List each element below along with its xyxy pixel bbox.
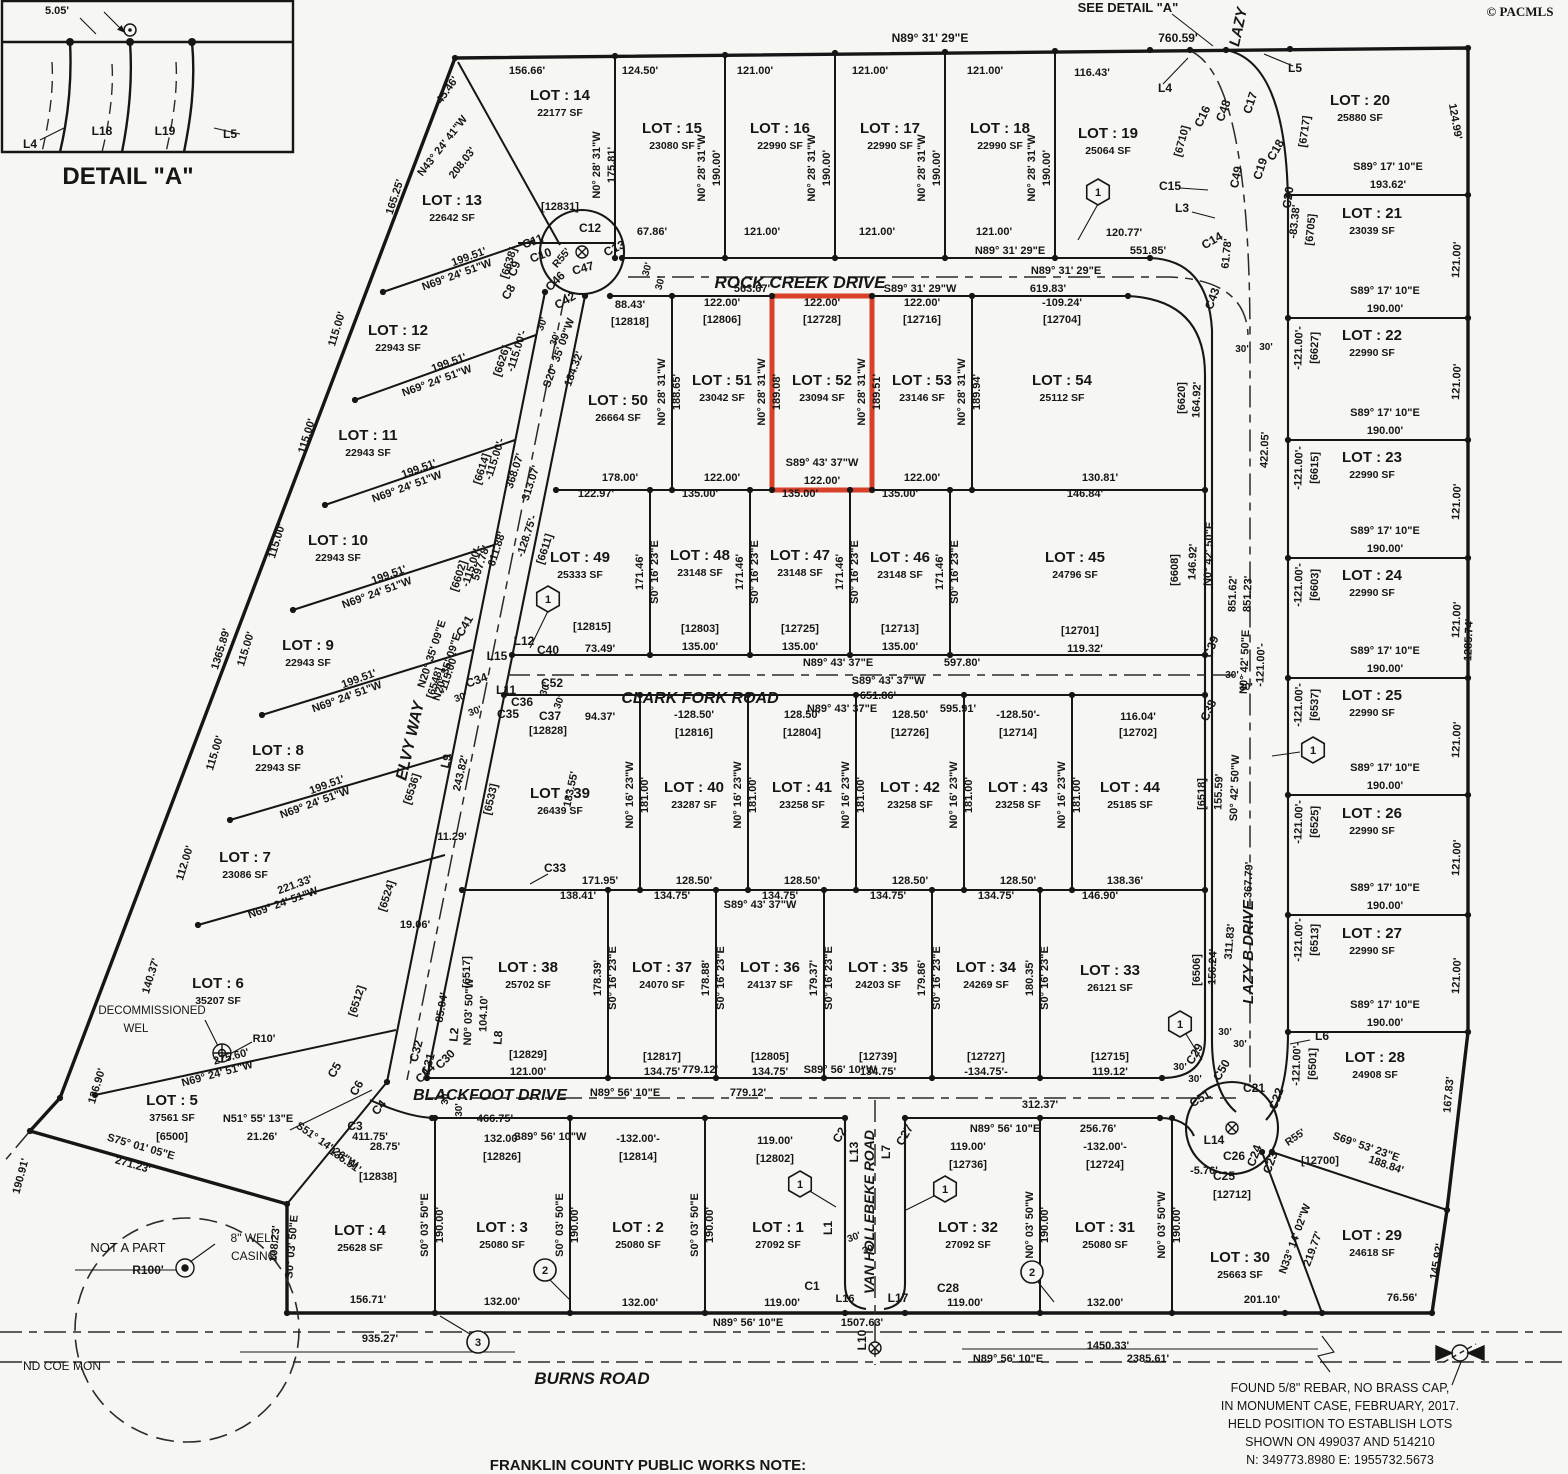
lot-label-41: LOT : 41 <box>772 779 832 796</box>
lot-label-29: LOT : 29 <box>1342 1227 1402 1244</box>
lot-area-15: 23080 SF <box>649 140 695 152</box>
survey-point-dot <box>619 255 625 261</box>
map-text-label: C35 <box>497 707 519 721</box>
survey-point-dot <box>1052 255 1058 261</box>
survey-point-dot <box>1465 315 1471 321</box>
map-text-label: [6537] <box>1308 688 1321 721</box>
monument-note-line: SHOWN ON 499037 AND 514210 <box>1245 1435 1435 1449</box>
survey-point-dot <box>853 887 859 893</box>
map-text-label: 119.32' <box>1067 643 1103 655</box>
lot-label-18: LOT : 18 <box>970 120 1030 137</box>
lot-label-20: LOT : 20 <box>1330 92 1390 109</box>
map-text-label: 190.00' <box>1367 900 1404 912</box>
lot-label-45: LOT : 45 <box>1045 549 1105 566</box>
survey-point-dot <box>1069 887 1075 893</box>
map-text-label: 130.81' <box>1082 472 1119 484</box>
map-text-label: 122.00' <box>804 297 841 309</box>
map-text-label: 122.00' <box>704 297 741 309</box>
map-text-label: 851.23' <box>1241 575 1254 612</box>
lot-label-24: LOT : 24 <box>1342 567 1403 584</box>
survey-point-dot <box>509 652 515 658</box>
lot-area-16: 22990 SF <box>757 140 803 152</box>
map-text-label: -132.00'- <box>1083 1141 1127 1153</box>
survey-point-dot <box>352 397 358 403</box>
map-text-label: S89° 43' 37"W <box>786 457 859 469</box>
map-text-label: 121.00' <box>510 1066 547 1078</box>
lot-label-13: LOT : 13 <box>422 192 482 209</box>
map-text-label: N89° 56' 10"E <box>973 1353 1043 1365</box>
lot-area-25: 22990 SF <box>1349 707 1395 719</box>
survey-point-dot <box>1125 293 1131 299</box>
map-text-label: 134.75' <box>654 890 691 902</box>
map-text-label: [12829] <box>509 1049 547 1061</box>
map-text-label: C12 <box>579 221 601 235</box>
map-text-label: 135.00' <box>782 641 819 653</box>
lot-label-26: LOT : 26 <box>1342 805 1402 822</box>
survey-point-dot <box>832 50 838 56</box>
map-text-label: L19 <box>155 124 176 138</box>
map-text-label: [12814] <box>619 1151 657 1163</box>
map-text-label: 180.35' <box>1024 959 1036 996</box>
lot-label-6: LOT : 6 <box>192 975 244 992</box>
map-text-label: CASING <box>231 1249 277 1263</box>
survey-point-dot <box>567 1310 573 1316</box>
lot-label-31: LOT : 31 <box>1075 1219 1135 1236</box>
circle-marker-number: 2 <box>1029 1267 1035 1279</box>
map-text-label: N0° 42' 50"E <box>1238 630 1252 695</box>
map-text-label: 5.05' <box>45 5 69 17</box>
lot-area-1: 27092 SF <box>755 1239 801 1251</box>
map-text-label: [12700] <box>1301 1155 1339 1167</box>
survey-point-dot <box>1147 47 1153 53</box>
map-text-label: 189.51' <box>871 373 883 410</box>
lot-label-16: LOT : 16 <box>750 120 810 137</box>
map-text-label: 121.00' <box>1450 957 1464 994</box>
map-text-label: 30' <box>1233 1039 1247 1050</box>
survey-point-dot <box>1285 792 1291 798</box>
lot-label-23: LOT : 23 <box>1342 449 1402 466</box>
map-text-label: N0° 28' 31"W <box>591 131 603 199</box>
map-text-label: S89° 43' 37"W <box>852 675 925 687</box>
map-text-label: 138.36' <box>1107 875 1144 887</box>
survey-point-dot <box>1069 692 1075 698</box>
map-text-label: [12816] <box>675 727 713 739</box>
survey-point-dot <box>1285 315 1291 321</box>
survey-point-dot <box>1202 887 1208 893</box>
lot-area-24: 22990 SF <box>1349 587 1395 599</box>
survey-point-dot <box>942 255 948 261</box>
map-text-label: 138.41' <box>560 890 597 902</box>
map-text-label: [12713] <box>881 623 919 635</box>
keynote-circle-2: 2 <box>1021 1261 1043 1283</box>
map-text-label: S0° 16' 23"E <box>749 540 761 604</box>
survey-point-dot <box>769 487 775 493</box>
map-text-label: R100' <box>132 1263 164 1277</box>
map-text-label: [12805] <box>751 1051 789 1063</box>
map-text-label: 122.97' <box>578 488 615 500</box>
map-text-label: 121.00' <box>1450 839 1464 876</box>
keynote-circle-2: 2 <box>534 1259 556 1281</box>
map-text-label: C1 <box>804 1279 820 1293</box>
map-text-label: N0° 03' 50"W <box>462 977 476 1045</box>
lot-label-36: LOT : 36 <box>740 959 800 976</box>
map-text-label: 122.00' <box>804 475 841 487</box>
map-text-label: 135.00' <box>682 641 719 653</box>
map-text-label: 189.94' <box>971 373 983 410</box>
survey-point-dot <box>1159 1075 1165 1081</box>
survey-point-dot <box>259 712 265 718</box>
map-text-label: 128.50' <box>892 709 929 721</box>
hexagon-marker-number: 1 <box>545 594 551 606</box>
map-text-label: 146.92' <box>1186 543 1199 580</box>
map-text-label: [12838] <box>359 1171 397 1183</box>
map-text-label: 128.50' <box>784 709 821 721</box>
lot-area-46: 23148 SF <box>877 569 923 581</box>
map-text-label: DECOMMISSIONED <box>98 1005 205 1017</box>
survey-point-dot <box>1465 192 1471 198</box>
map-text-label: 256.76' <box>1080 1123 1117 1135</box>
lot-label-21: LOT : 21 <box>1342 205 1402 222</box>
map-text-label: N89° 31' 29"E <box>1031 265 1101 277</box>
map-text-label: L3 <box>1175 201 1189 215</box>
map-text-label: 128.50' <box>676 875 713 887</box>
map-text-label: -121.00'- <box>1292 800 1306 844</box>
map-text-label: S0° 03' 50"E <box>554 1193 566 1257</box>
map-text-label: 201.10' <box>1244 1294 1281 1306</box>
lot-area-47: 23148 SF <box>777 567 823 579</box>
map-text-label: 181.00' <box>1071 776 1083 813</box>
survey-point-dot <box>1465 1029 1471 1035</box>
survey-point-dot <box>1285 1029 1291 1035</box>
survey-point-dot <box>713 887 719 893</box>
hexagon-marker-number: 1 <box>942 1184 948 1196</box>
lot-area-5: 37561 SF <box>149 1112 195 1124</box>
map-text-label: C21 <box>1243 1081 1265 1095</box>
map-text-label: 124.50' <box>622 65 659 77</box>
map-text-label: 181.00' <box>747 776 759 813</box>
map-text-label: 1285.74' <box>1462 618 1475 661</box>
lot-area-45: 24796 SF <box>1052 569 1098 581</box>
lot-label-2: LOT : 2 <box>612 1219 664 1236</box>
map-text-label: S89° 17' 10"E <box>1350 285 1420 297</box>
map-text-label: C33 <box>544 861 566 875</box>
map-text-label: N89° 56' 10"E <box>590 1087 660 1099</box>
lot-label-15: LOT : 15 <box>642 120 702 137</box>
lot-area-52: 23094 SF <box>799 392 845 404</box>
map-text-label: 466.75' <box>477 1113 514 1125</box>
map-text-label: N51° 55' 13"E <box>223 1113 293 1125</box>
survey-point-dot <box>1465 45 1471 51</box>
map-text-label: [12726] <box>891 727 929 739</box>
survey-point-dot <box>669 487 675 493</box>
map-text-label: L14 <box>1204 1133 1225 1147</box>
map-text-label: [12716] <box>903 314 941 326</box>
lot-area-4: 25628 SF <box>337 1242 383 1254</box>
map-text-label: 21.26' <box>247 1131 278 1143</box>
lot-area-42: 23258 SF <box>887 799 933 811</box>
detail-a-monument-dot <box>128 28 132 32</box>
survey-point-dot <box>1037 1075 1043 1081</box>
detail-a-point <box>188 38 196 46</box>
map-text-label: S89° 17' 10"E <box>1350 645 1420 657</box>
map-text-label: BLACKFOOT DRIVE <box>413 1087 568 1104</box>
lot-area-39: 26439 SF <box>537 805 583 817</box>
lot-area-35: 24203 SF <box>855 979 901 991</box>
survey-point-dot <box>747 487 753 493</box>
map-text-label: [12724] <box>1086 1159 1124 1171</box>
map-text-label: L1 <box>821 1221 835 1235</box>
map-text-label: 175.81' <box>606 146 618 183</box>
map-text-label: 312.37' <box>1022 1099 1059 1111</box>
map-text-label: 188.65' <box>671 373 683 410</box>
lot-label-51: LOT : 51 <box>692 372 752 389</box>
monument-note-line: HELD POSITION TO ESTABLISH LOTS <box>1228 1417 1452 1431</box>
map-text-label: 760.59' <box>1158 31 1198 45</box>
lot-area-43: 23258 SF <box>995 799 1041 811</box>
map-text-label: 190.00' <box>821 149 833 186</box>
lot-area-17: 22990 SF <box>867 140 913 152</box>
map-text-label: 178.88' <box>700 959 712 996</box>
map-text-label: N0° 28' 31"W <box>956 358 968 426</box>
survey-point-dot <box>1157 1115 1163 1121</box>
map-text-label: CLARK FORK ROAD <box>621 690 779 707</box>
survey-point-dot <box>1052 48 1058 54</box>
survey-point-dot <box>459 887 465 893</box>
lot-area-37: 24070 SF <box>639 979 685 991</box>
lot-area-18: 22990 SF <box>977 140 1023 152</box>
map-text-label: 193.62' <box>1370 179 1407 191</box>
survey-point-dot <box>57 1095 63 1101</box>
monument-note-line: FOUND 5/8" REBAR, NO BRASS CAP, <box>1231 1381 1450 1395</box>
map-text-label: N89° 56' 10"E <box>713 1317 783 1329</box>
map-text-label: [12739] <box>859 1051 897 1063</box>
lot-label-7: LOT : 7 <box>219 849 271 866</box>
survey-point-dot <box>284 1201 290 1207</box>
survey-point-dot <box>1037 887 1043 893</box>
map-text-label: L18 <box>92 124 113 138</box>
survey-point-dot <box>961 692 967 698</box>
lot-area-7: 23086 SF <box>222 869 268 881</box>
survey-point-dot <box>745 887 751 893</box>
map-text-label: S89° 17' 10"E <box>1350 407 1420 419</box>
map-text-label: 132.00' <box>484 1133 521 1145</box>
keynote-hexagon-1: 1 <box>789 1171 812 1197</box>
survey-point-dot <box>669 293 675 299</box>
lot-label-53: LOT : 53 <box>892 372 952 389</box>
map-text-label: 121.00' <box>1450 483 1464 520</box>
lot-area-49: 25333 SF <box>557 569 603 581</box>
map-text-label: S89° 56' 10"W <box>804 1064 877 1076</box>
lot-area-27: 22990 SF <box>1349 945 1395 957</box>
survey-point-dot <box>647 652 653 658</box>
map-text-label: [12803] <box>681 623 719 635</box>
map-text-label: -132.00'- <box>616 1133 660 1145</box>
map-text-label: L5 <box>223 127 237 141</box>
lot-label-11: LOT : 11 <box>338 427 397 444</box>
keynote-hexagon-1: 1 <box>1169 1011 1192 1037</box>
map-text-label: 119.00' <box>950 1141 986 1153</box>
lot-area-6: 35207 SF <box>195 995 241 1007</box>
map-text-label: 155.59' <box>1212 773 1225 810</box>
lot-label-10: LOT : 10 <box>308 532 368 549</box>
map-text-label: -121.00'- <box>1290 1042 1304 1086</box>
map-text-label: 132.00' <box>484 1296 521 1308</box>
survey-point-dot <box>1465 675 1471 681</box>
map-text-label: N0° 16' 23"W <box>1056 761 1068 829</box>
map-text-label: S0° 03' 50"E <box>419 1193 431 1257</box>
lot-area-21: 23039 SF <box>1349 225 1395 237</box>
lot-label-1: LOT : 1 <box>752 1219 804 1236</box>
map-text-label: 171.46' <box>934 553 946 590</box>
map-text-label: [12818] <box>611 316 649 328</box>
lot-area-29: 24618 SF <box>1349 1247 1395 1259</box>
survey-point-dot <box>1465 912 1471 918</box>
map-text-label: 76.56' <box>1387 1292 1418 1304</box>
survey-point-dot <box>1465 437 1471 443</box>
map-text-label: S89° 17' 10"E <box>1353 161 1423 173</box>
lot-area-20: 25880 SF <box>1337 112 1383 124</box>
survey-point-dot <box>722 52 728 58</box>
lot-area-28: 24908 SF <box>1352 1069 1398 1081</box>
map-text-label: S89° 17' 10"E <box>1350 762 1420 774</box>
map-text-label: 104.10' <box>477 995 490 1032</box>
map-text-label: S0° 16' 23"E <box>649 540 661 604</box>
lot-label-49: LOT : 49 <box>550 549 610 566</box>
map-text-label: L2 <box>446 1027 461 1042</box>
survey-point-dot <box>842 1310 848 1316</box>
map-text-label: [12704] <box>1043 314 1081 326</box>
map-text-label: [6513] <box>1308 923 1321 956</box>
lot-area-3: 25080 SF <box>479 1239 525 1251</box>
map-text-label: 190.00' <box>1367 780 1404 792</box>
map-text-label: 171.46' <box>834 553 846 590</box>
map-text-label: 190.00' <box>434 1206 446 1243</box>
lot-label-32: LOT : 32 <box>938 1219 998 1236</box>
survey-point-dot <box>947 487 953 493</box>
map-text-label: 779.12' <box>730 1087 767 1099</box>
map-text-label: 181.00' <box>639 776 651 813</box>
map-text-label: 179.37' <box>808 959 820 996</box>
map-text-label: S89° 17' 10"E <box>1350 999 1420 1011</box>
map-text-label: N0° 16' 23"W <box>732 761 744 829</box>
survey-point-dot <box>1202 692 1208 698</box>
survey-point-dot <box>290 607 296 613</box>
lot-label-42: LOT : 42 <box>880 779 940 796</box>
survey-point-dot <box>821 887 827 893</box>
keynote-hexagon-1: 1 <box>934 1176 957 1202</box>
survey-point-dot <box>227 817 233 823</box>
map-text-label: -109.24' <box>1042 297 1082 309</box>
survey-point-dot <box>1285 675 1291 681</box>
survey-point-dot <box>380 289 386 295</box>
map-text-label: 134.75' <box>752 1066 789 1078</box>
survey-point-dot <box>969 487 975 493</box>
lot-area-51: 23042 SF <box>699 392 745 404</box>
keynote-hexagon-1: 1 <box>537 586 560 612</box>
map-text-label: 88.43' <box>615 299 646 311</box>
lot-area-33: 26121 SF <box>1087 982 1133 994</box>
lot-label-38: LOT : 38 <box>498 959 558 976</box>
map-text-label: 121.00' <box>859 226 896 238</box>
map-text-label: S0° 42' 50"W <box>1228 754 1242 822</box>
survey-point-dot <box>747 652 753 658</box>
map-text-label: ND COE MON <box>23 1359 101 1373</box>
map-text-label: S0° 16' 23"E <box>715 946 727 1010</box>
map-text-label: 190.00' <box>1367 303 1404 315</box>
lot-area-31: 25080 SF <box>1082 1239 1128 1251</box>
keynote-hexagon-1: 1 <box>1087 179 1110 205</box>
map-text-label: 121.00' <box>967 65 1004 77</box>
survey-point-dot <box>1429 1310 1435 1316</box>
lot-label-4: LOT : 4 <box>334 1222 386 1239</box>
lot-label-46: LOT : 46 <box>870 549 930 566</box>
survey-point-dot <box>1287 46 1293 52</box>
map-text-label: 67.86' <box>637 226 668 238</box>
map-text-label: 422.05' <box>1258 431 1271 468</box>
lot-area-14: 22177 SF <box>537 107 583 119</box>
map-text-label: 121.00' <box>852 65 889 77</box>
map-text-label: [12712] <box>1213 1189 1251 1201</box>
map-text-label: 189.08' <box>771 373 783 410</box>
lot-label-48: LOT : 48 <box>670 547 730 564</box>
map-text-label: [6608] <box>1169 554 1181 586</box>
lot-area-38: 25702 SF <box>505 979 551 991</box>
map-text-label: L7 <box>879 1145 893 1159</box>
survey-point-dot <box>284 1310 290 1316</box>
map-text-label: [12715] <box>1091 1051 1129 1063</box>
survey-point-dot <box>929 1075 935 1081</box>
survey-point-dot <box>853 692 859 698</box>
detail-a-point <box>126 38 134 46</box>
lot-area-23: 22990 SF <box>1349 469 1395 481</box>
map-text-label: N89° 43' 37"E <box>803 657 873 669</box>
map-text-label: -128.50'- <box>996 709 1040 721</box>
survey-point-dot <box>869 487 875 493</box>
map-text-label: [6615] <box>1308 451 1321 484</box>
map-text-label: [6620] <box>1176 382 1188 414</box>
map-text-label: N0° 28' 31"W <box>856 358 868 426</box>
map-text-label: 146.90' <box>1082 890 1119 902</box>
map-text-label: 190.00' <box>1171 1206 1183 1243</box>
map-text-label: [12701] <box>1061 625 1099 637</box>
map-text-label: 619.83' <box>1030 283 1067 295</box>
map-text-label: 19.06' <box>400 919 431 931</box>
map-text-label: © PACMLS <box>1487 4 1554 19</box>
survey-point-dot <box>432 1115 438 1121</box>
map-text-label: 128.50' <box>784 875 821 887</box>
survey-point-dot <box>1285 912 1291 918</box>
map-text-label: C37 <box>539 709 561 723</box>
map-text-label: 121.00' <box>1450 363 1464 400</box>
map-text-label: 190.00' <box>1367 425 1404 437</box>
map-text-label: N0° 28' 31"W <box>696 134 708 202</box>
map-text-label: [12702] <box>1119 727 1157 739</box>
map-text-label: S89° 17' 10"E <box>1350 882 1420 894</box>
survey-point-dot <box>1319 1310 1325 1316</box>
map-text-label: 935.27' <box>362 1333 399 1345</box>
map-text-label: L4 <box>1158 81 1172 95</box>
lot-area-41: 23258 SF <box>779 799 825 811</box>
map-text-label: 190.00' <box>569 1206 581 1243</box>
lot-label-44: LOT : 44 <box>1100 779 1161 796</box>
map-text-label: N0° 03' 50"W <box>1156 1191 1168 1259</box>
survey-point-dot <box>612 53 618 59</box>
lot-area-10: 22943 SF <box>315 552 361 564</box>
monument-note-line: IN MONUMENT CASE, FEBRUARY, 2017. <box>1221 1399 1459 1413</box>
map-text-label: C28 <box>937 1281 959 1295</box>
lot-label-50: LOT : 50 <box>588 392 648 409</box>
map-text-label: 156.24' <box>1206 948 1219 985</box>
